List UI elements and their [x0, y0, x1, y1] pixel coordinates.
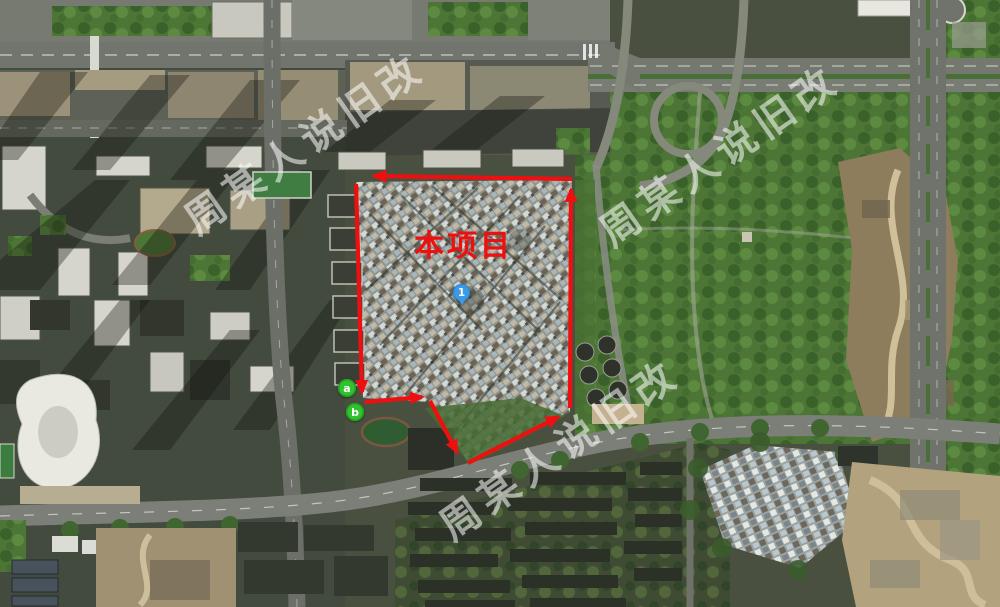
project-label: 本项目	[414, 232, 513, 262]
marker-b-label: b	[351, 406, 359, 419]
marker-b-icon[interactable]: b	[346, 403, 364, 421]
marker-a-label: a	[343, 382, 350, 395]
satellite-base-layer	[0, 0, 1000, 607]
info-marker-icon[interactable]: 1	[453, 284, 470, 301]
satellite-map: 周某人说旧改 周某人说旧改 周某人说旧改 本项目 1 a b	[0, 0, 1000, 607]
info-marker-label: 1	[458, 287, 465, 299]
north-slab-buildings	[338, 149, 564, 170]
marker-a-icon[interactable]: a	[338, 379, 356, 397]
southeast-construction	[842, 462, 1000, 607]
